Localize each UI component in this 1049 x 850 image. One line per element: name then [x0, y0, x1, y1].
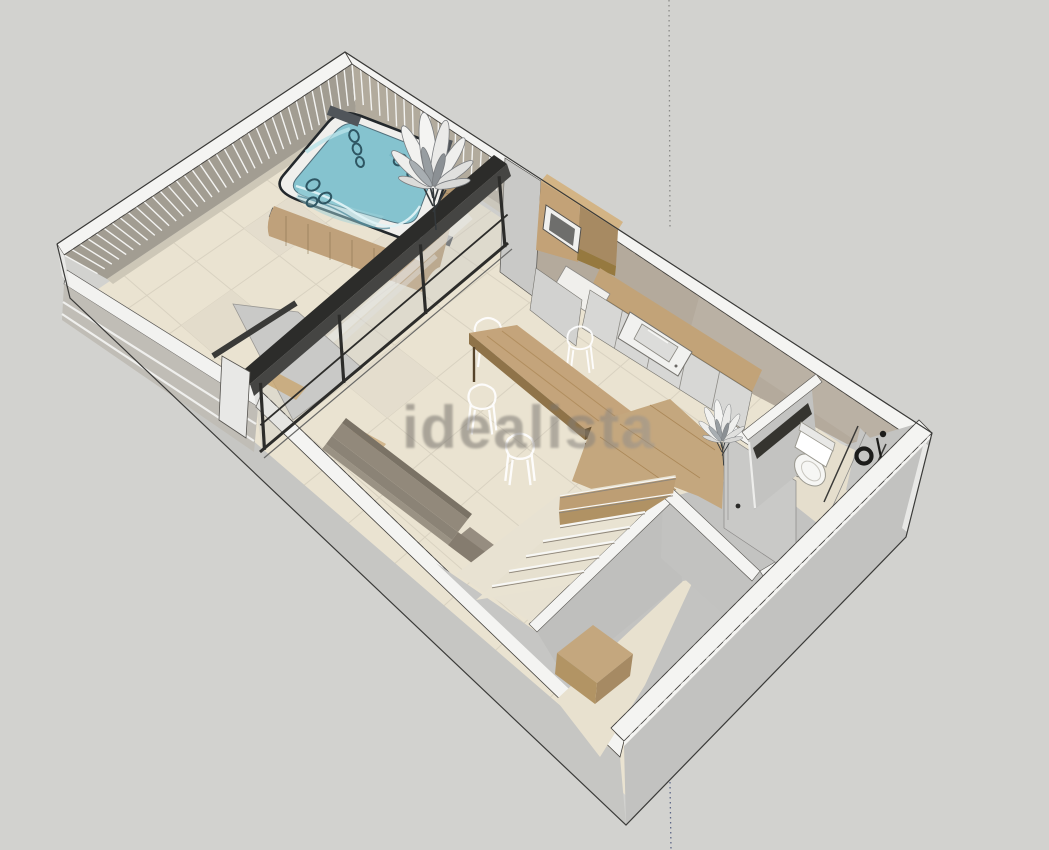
svg-text:idealista: idealista: [402, 394, 656, 461]
